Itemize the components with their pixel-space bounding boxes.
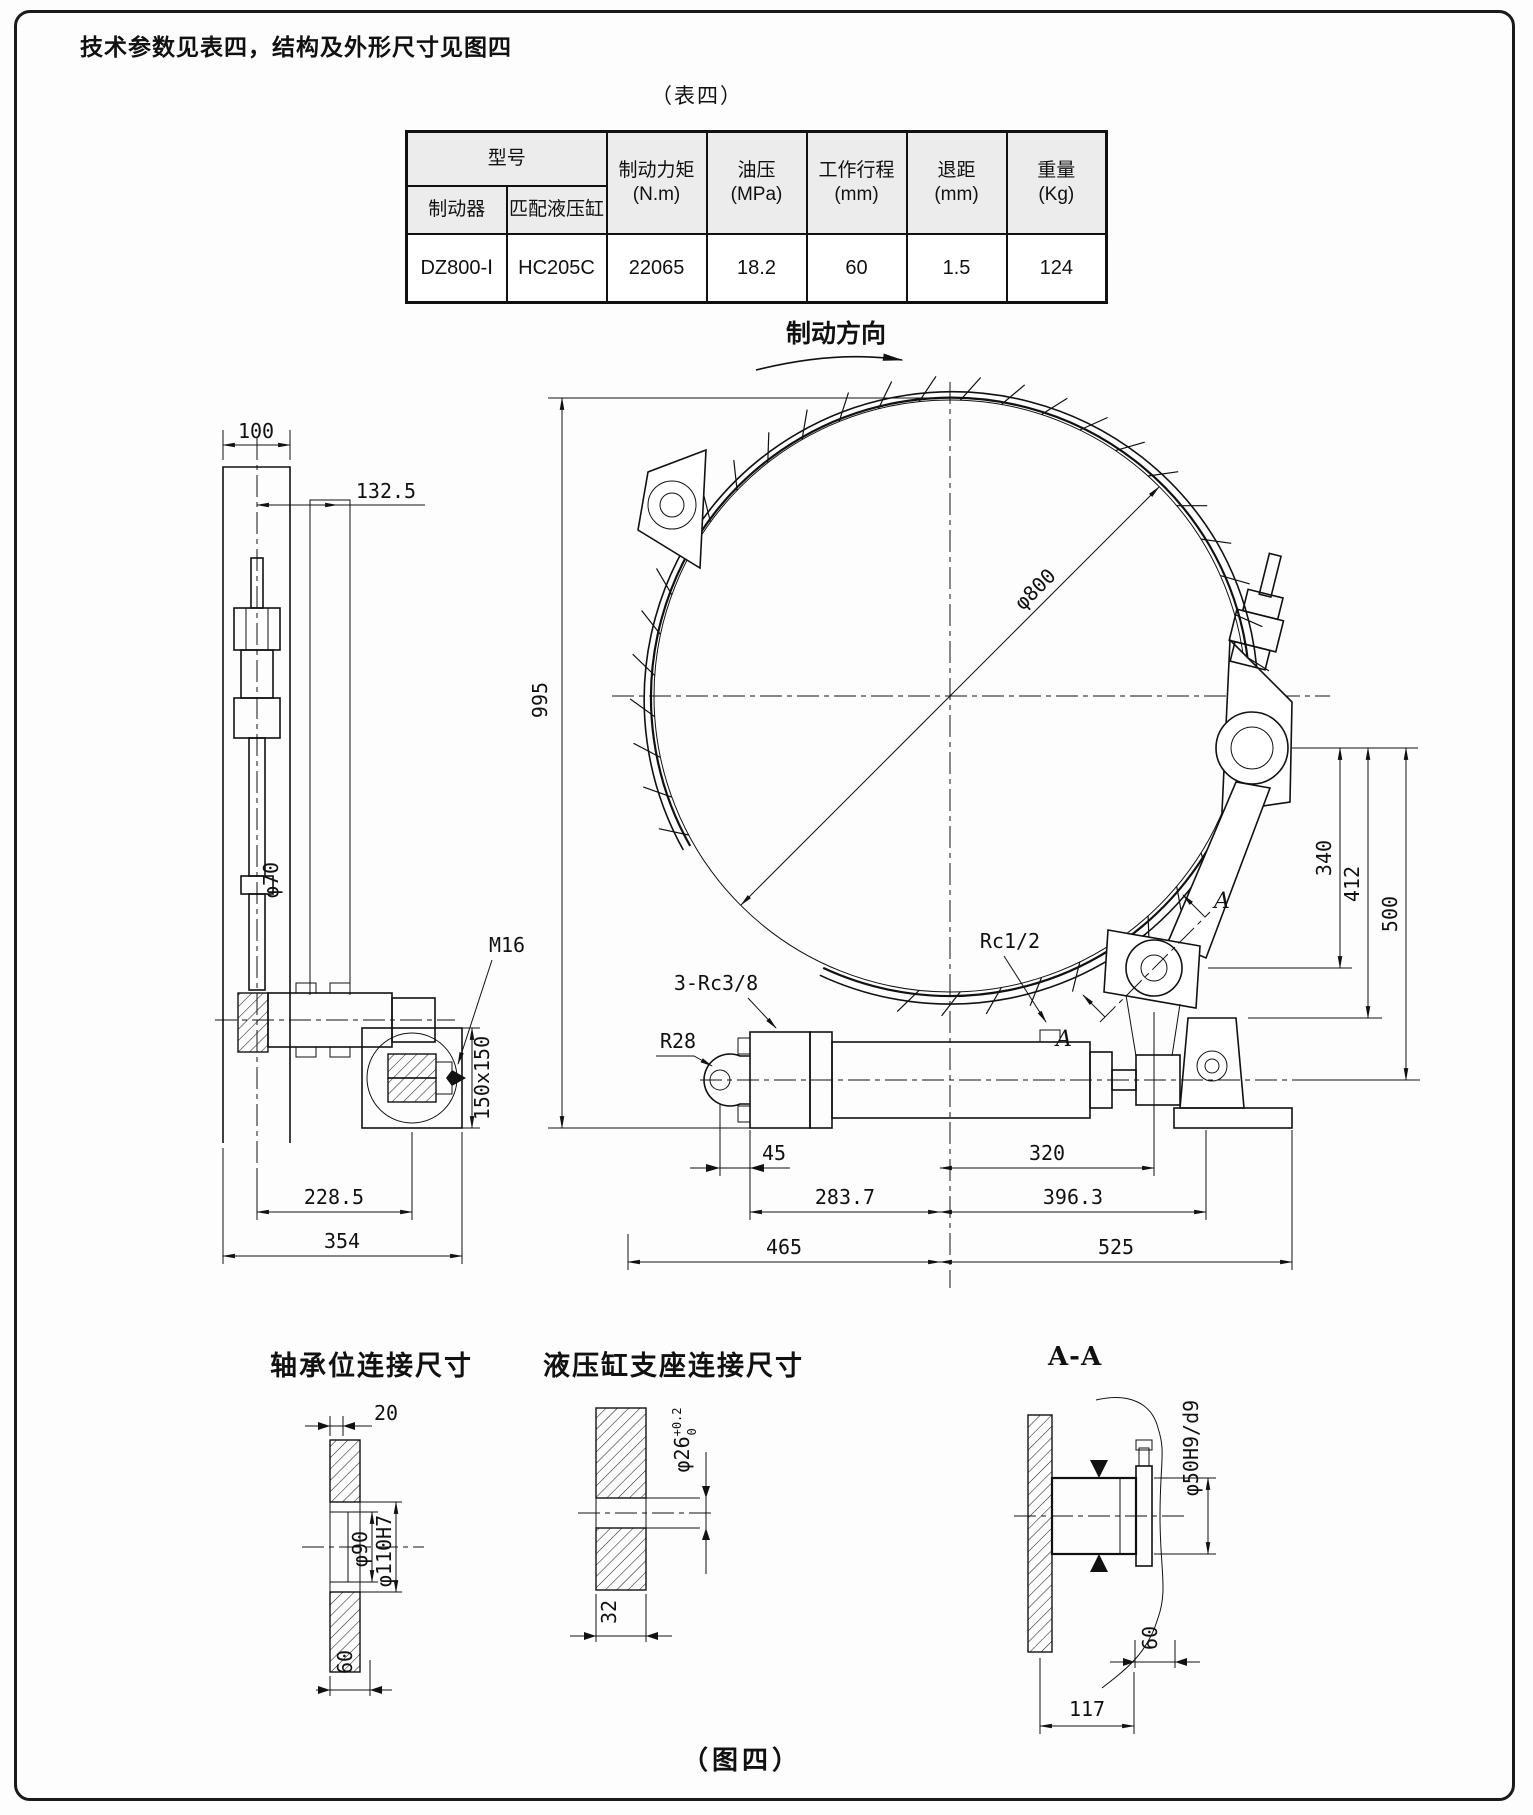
dim-228-5: 228.5 [304, 1185, 364, 1209]
adjuster-assembly [215, 983, 455, 1057]
detail-cylinder-support: φ26+0.20 32 [570, 1407, 714, 1642]
dim-100: 100 [238, 419, 274, 443]
dim-354: 354 [324, 1229, 360, 1253]
dim-20: 20 [374, 1401, 398, 1425]
dim-525: 525 [1098, 1235, 1134, 1259]
m16-bolt-head [446, 1070, 466, 1086]
dim-117: 117 [1069, 1697, 1105, 1721]
dim-465: 465 [766, 1235, 802, 1259]
dim-45: 45 [762, 1141, 786, 1165]
dim-phi26: φ26+0.20 [670, 1407, 699, 1472]
section-label-a1: A [1212, 889, 1230, 914]
dim-phi70: φ70 [259, 862, 283, 898]
dim-132-5: 132.5 [356, 479, 416, 503]
dim-340: 340 [1312, 840, 1336, 876]
bearing-plate [362, 1028, 466, 1128]
dim-phi110h7: φ110H7 [372, 1515, 396, 1587]
dim-283-7: 283.7 [815, 1185, 875, 1209]
label-rc38: 3-Rc3/8 [674, 971, 758, 995]
dim-phi800: φ800 [1010, 564, 1061, 615]
right-lever-assembly [1104, 549, 1299, 1056]
engineering-drawing: 100 132.5 φ70 M16 150x150 228.5 354 制动方向… [0, 0, 1533, 1815]
dim-phi50h9d9: φ50H9/d9 [1179, 1400, 1203, 1496]
dim-396-3: 396.3 [1043, 1185, 1103, 1209]
label-m16: M16 [489, 933, 525, 957]
label-rc12: Rc1/2 [980, 929, 1040, 953]
section-label-a2: A [1054, 1027, 1072, 1052]
dim-32: 32 [597, 1600, 621, 1624]
braking-direction-label: 制动方向 [786, 319, 886, 348]
detail-title-bearing: 轴承位连接尺寸 [270, 1344, 473, 1383]
detail-title-section: A-A [1048, 1342, 1102, 1372]
dim-320: 320 [1029, 1141, 1065, 1165]
cylinder-support-bracket [1174, 1018, 1292, 1128]
braking-direction-arrow [756, 357, 902, 370]
dim-60-section: 60 [1138, 1626, 1162, 1650]
figure-caption: （图四） [622, 1740, 862, 1777]
left-side-view: 100 132.5 φ70 M16 150x150 228.5 354 [215, 419, 525, 1264]
dim-phi90: φ90 [348, 1531, 372, 1567]
dim-412: 412 [1340, 866, 1364, 902]
dim-500: 500 [1378, 896, 1402, 932]
detail-bearing-seat: 20 φ90 φ110H7 60 [302, 1401, 424, 1696]
detail-title-support: 液压缸支座连接尺寸 [543, 1344, 804, 1383]
left-mount-lug [638, 450, 706, 568]
label-r28: R28 [660, 1029, 696, 1053]
main-front-view: 制动方向 φ800 [528, 319, 1420, 1288]
dim-plate-150x150: 150x150 [470, 1036, 494, 1120]
dim-60-bearing: 60 [333, 1650, 357, 1674]
detail-section-aa: φ50H9/d9 60 117 [1014, 1398, 1216, 1734]
dim-995: 995 [528, 682, 552, 718]
